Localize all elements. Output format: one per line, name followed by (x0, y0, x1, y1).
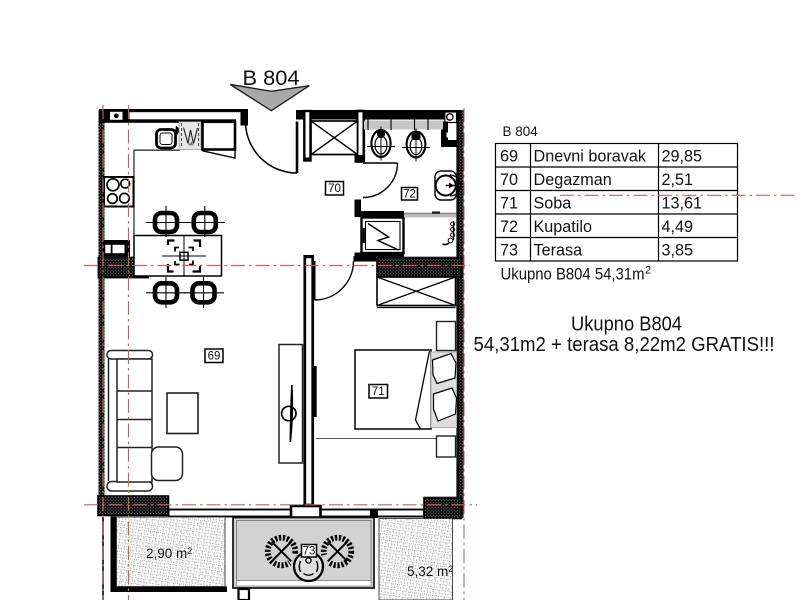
svg-text:Ukupno B804 54,31m: Ukupno B804 54,31m (501, 266, 645, 284)
svg-text:3,85: 3,85 (662, 242, 694, 260)
svg-text:72: 72 (500, 218, 518, 236)
svg-text:2,51: 2,51 (662, 171, 694, 189)
svg-text:B 804: B 804 (243, 66, 300, 90)
svg-text:72: 72 (403, 189, 416, 201)
svg-text:B 804: B 804 (503, 124, 539, 139)
svg-text:71: 71 (500, 195, 518, 213)
svg-text:69: 69 (500, 148, 518, 166)
svg-text:Soba: Soba (534, 195, 572, 213)
svg-text:73: 73 (500, 242, 518, 260)
svg-text:70: 70 (500, 171, 518, 189)
svg-text:Dnevni boravak: Dnevni boravak (534, 148, 647, 166)
svg-text:2,90 m2: 2,90 m2 (146, 546, 192, 561)
svg-text:Ukupno B804: Ukupno B804 (571, 314, 682, 336)
svg-text:29,85: 29,85 (662, 148, 703, 166)
svg-text:Degazman: Degazman (534, 171, 612, 189)
svg-text:4,49: 4,49 (662, 218, 694, 236)
svg-text:70: 70 (328, 183, 341, 195)
svg-text:5,32 m2: 5,32 m2 (407, 564, 453, 579)
svg-text:13,61: 13,61 (662, 195, 703, 213)
svg-text:69: 69 (208, 351, 221, 363)
svg-text:Kupatilo: Kupatilo (534, 218, 593, 236)
svg-text:73: 73 (303, 546, 316, 558)
svg-text:71: 71 (372, 386, 385, 398)
svg-text:54,31m2 + terasa 8,22m2 GRATIS: 54,31m2 + terasa 8,22m2 GRATIS!!! (474, 334, 775, 356)
svg-text:2: 2 (645, 265, 651, 277)
svg-text:Terasa: Terasa (534, 242, 583, 260)
